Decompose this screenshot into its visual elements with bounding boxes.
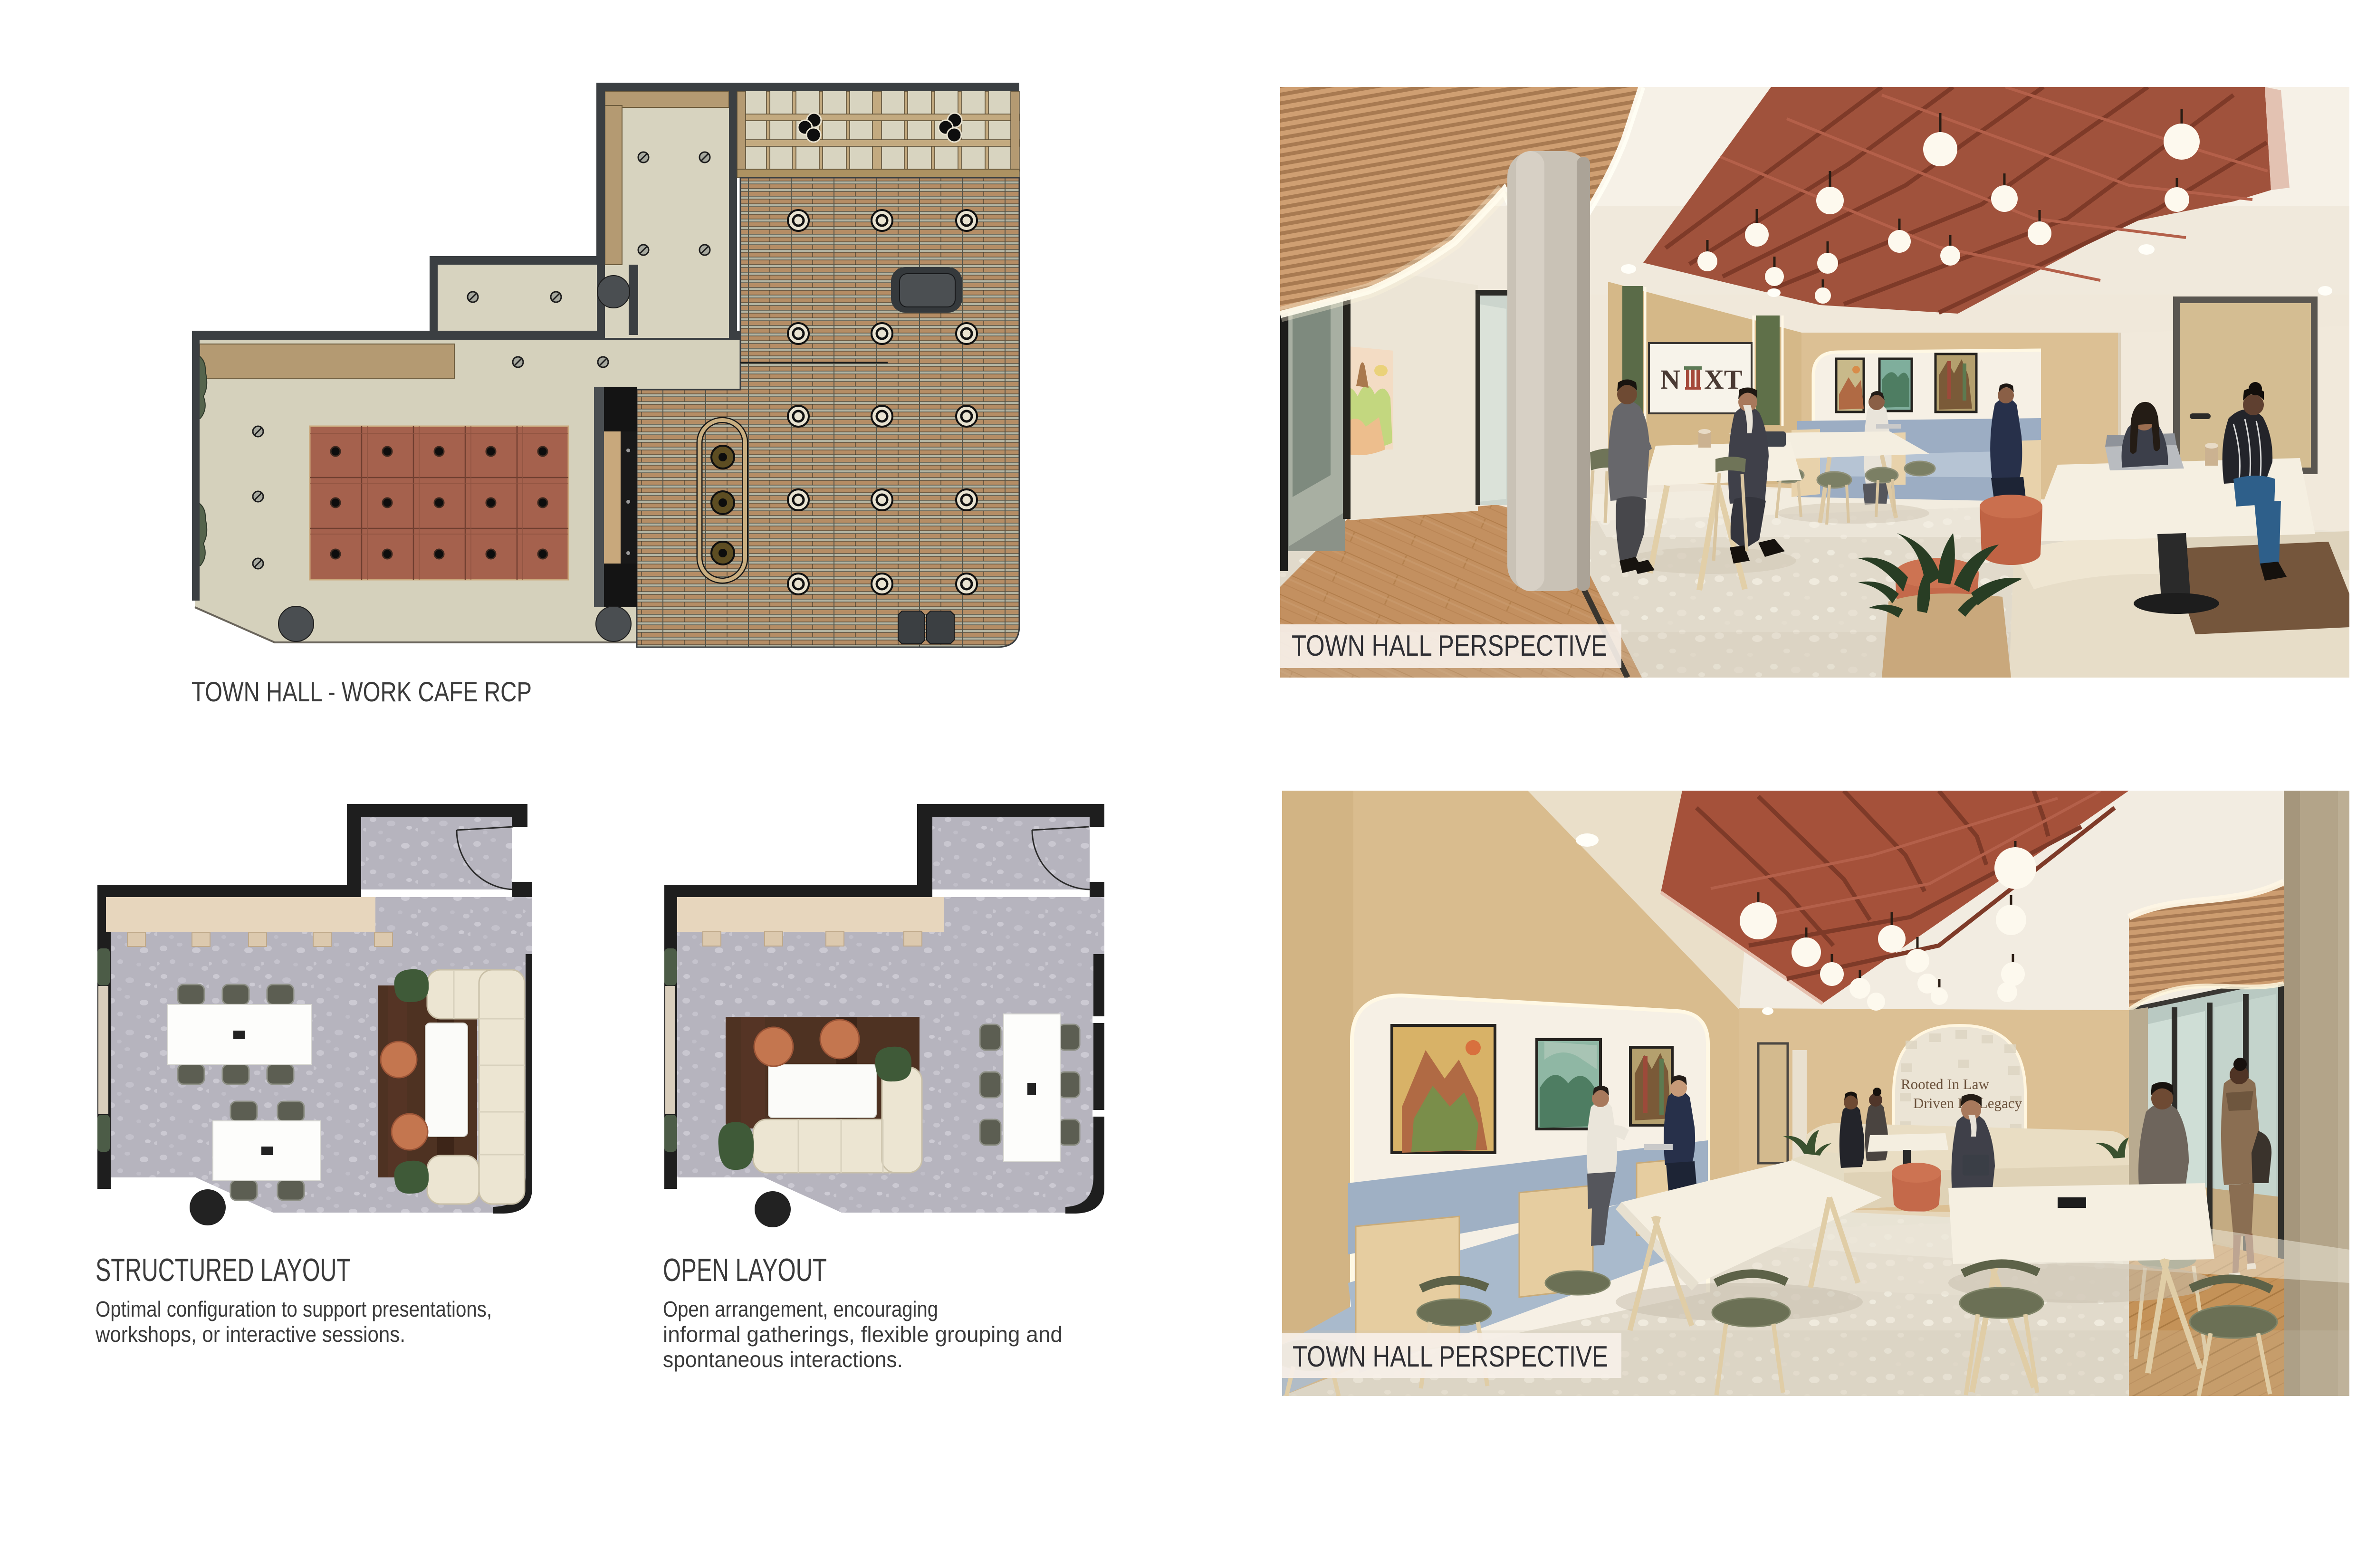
svg-text:OPEN LAYOUT: OPEN LAYOUT	[663, 1252, 827, 1288]
svg-text:informal gatherings, flexible: informal gatherings, flexible grouping a…	[663, 1322, 1063, 1347]
svg-text:TOWN HALL PERSPECTIVE: TOWN HALL PERSPECTIVE	[1292, 630, 1607, 662]
svg-text:workshops, or interactive sess: workshops, or interactive sessions.	[95, 1322, 405, 1347]
svg-text:spontaneous interactions.: spontaneous interactions.	[663, 1347, 903, 1372]
svg-text:Optimal configuration to suppo: Optimal configuration to support present…	[96, 1297, 492, 1321]
svg-text:STRUCTURED LAYOUT: STRUCTURED LAYOUT	[96, 1252, 351, 1288]
svg-text:TOWN HALL - WORK CAFE RCP: TOWN HALL - WORK CAFE RCP	[192, 677, 532, 708]
svg-text:N: N	[1660, 364, 1680, 395]
svg-text:Rooted In Law: Rooted In Law	[1901, 1076, 1990, 1092]
svg-text:TOWN HALL PERSPECTIVE: TOWN HALL PERSPECTIVE	[1293, 1340, 1608, 1373]
svg-text:XT: XT	[1704, 364, 1743, 395]
svg-text:Open arrangement, encouraging: Open arrangement, encouraging	[663, 1297, 938, 1321]
